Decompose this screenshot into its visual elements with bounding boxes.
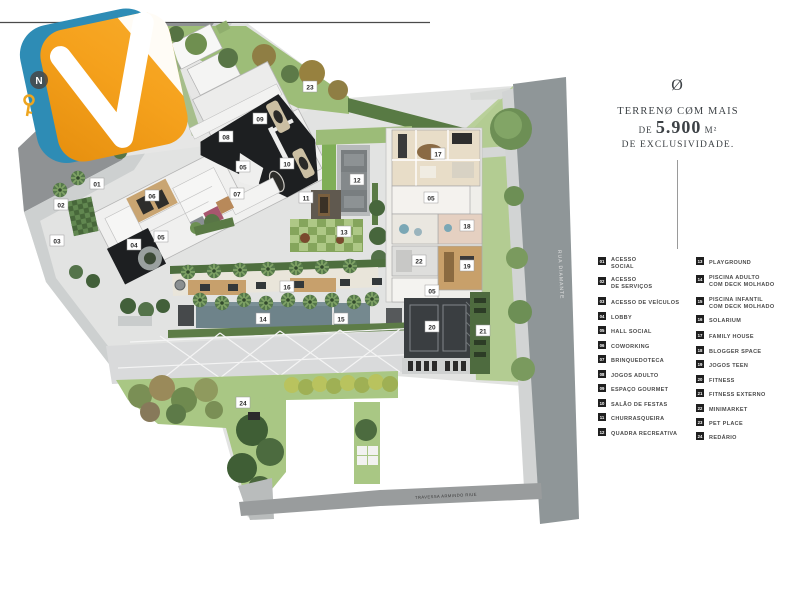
svg-text:18: 18 [698,348,703,353]
svg-text:01: 01 [600,259,605,264]
svg-text:TERRENØ CØM MAIS: TERRENØ CØM MAIS [617,106,738,117]
svg-text:SOLARIUM: SOLARIUM [709,318,741,324]
svg-text:20: 20 [428,325,436,332]
svg-text:09: 09 [600,386,605,391]
svg-text:23: 23 [306,85,314,92]
svg-text:ACESSO: ACESSO [611,257,637,263]
svg-text:06: 06 [148,194,156,201]
svg-text:11: 11 [600,415,605,420]
svg-text:23: 23 [698,420,703,425]
svg-text:05: 05 [239,165,247,172]
svg-text:QUADRA RECREATIVA: QUADRA RECREATIVA [611,431,677,437]
svg-text:14: 14 [698,277,703,282]
svg-text:CHURRASQUEIRA: CHURRASQUEIRA [611,416,664,422]
svg-text:10: 10 [283,162,291,169]
svg-text:COM DECK MOLHADO: COM DECK MOLHADO [709,304,775,310]
svg-text:24: 24 [698,434,703,439]
svg-text:FITNESS: FITNESS [709,378,735,384]
svg-text:22: 22 [415,259,423,266]
svg-text:17: 17 [698,333,703,338]
svg-text:03: 03 [600,299,605,304]
svg-text:20: 20 [698,377,703,382]
svg-text:FITNESS EXTERNO: FITNESS EXTERNO [709,392,766,398]
svg-text:03: 03 [53,239,61,246]
svg-text:13: 13 [340,230,348,237]
svg-text:LOBBY: LOBBY [611,315,632,321]
svg-text:BRINQUEDOTECA: BRINQUEDOTECA [611,358,664,364]
svg-text:08: 08 [222,135,230,142]
svg-text:DE EXCLUSIVIDADE.: DE EXCLUSIVIDADE. [622,140,735,150]
svg-text:PLAYGROUND: PLAYGROUND [709,260,751,266]
svg-text:17: 17 [434,152,442,159]
svg-text:COWORKING: COWORKING [611,344,650,350]
svg-text:DE 5.900 M²: DE 5.900 M² [639,117,718,137]
svg-text:06: 06 [600,343,605,348]
svg-text:18: 18 [463,224,471,231]
svg-text:13: 13 [698,259,703,264]
svg-text:19: 19 [463,264,471,271]
svg-text:SALÃO DE FESTAS: SALÃO DE FESTAS [611,401,668,408]
svg-text:15: 15 [698,299,703,304]
svg-text:05: 05 [600,328,605,333]
svg-text:JOGOS ADULTO: JOGOS ADULTO [611,373,659,379]
svg-text:BLOGGER SPACE: BLOGGER SPACE [709,349,761,355]
svg-text:MINIMARKET: MINIMARKET [709,407,748,413]
svg-text:05: 05 [157,235,165,242]
svg-text:Ø: Ø [671,77,683,94]
svg-text:05: 05 [428,289,436,296]
svg-text:N: N [35,76,42,87]
svg-text:07: 07 [233,192,241,199]
svg-text:COM DECK MOLHADO: COM DECK MOLHADO [709,282,775,288]
svg-text:12: 12 [353,178,361,185]
svg-text:DE SERVIÇOS: DE SERVIÇOS [611,284,652,290]
svg-text:04: 04 [130,243,138,250]
svg-text:22: 22 [698,406,703,411]
svg-text:21: 21 [698,391,703,396]
svg-text:12: 12 [600,430,605,435]
svg-text:19: 19 [698,362,703,367]
svg-text:FAMILY HOUSE: FAMILY HOUSE [709,334,754,340]
svg-text:JOGOS TEEN: JOGOS TEEN [709,363,748,369]
svg-text:PISCINA ADULTO: PISCINA ADULTO [709,275,760,281]
svg-text:02: 02 [57,203,65,210]
svg-text:HALL SOCIAL: HALL SOCIAL [611,329,652,335]
svg-text:ACESSO: ACESSO [611,277,637,283]
svg-text:14: 14 [259,317,267,324]
svg-text:PET PLACE: PET PLACE [709,421,743,427]
svg-text:01: 01 [93,182,101,189]
svg-text:02: 02 [600,279,605,284]
svg-text:21: 21 [479,329,487,336]
svg-text:ACESSO DE VEÍCULOS: ACESSO DE VEÍCULOS [611,298,679,306]
svg-text:10: 10 [600,401,605,406]
svg-text:15: 15 [337,317,345,324]
svg-text:REDÁRIO: REDÁRIO [709,434,737,441]
svg-text:SOCIAL: SOCIAL [611,264,634,270]
svg-text:08: 08 [600,372,605,377]
svg-text:16: 16 [698,317,703,322]
svg-text:11: 11 [303,196,310,203]
svg-text:PISCINA INFANTIL: PISCINA INFANTIL [709,297,763,303]
svg-text:05: 05 [427,196,435,203]
svg-text:24: 24 [239,401,247,408]
svg-text:04: 04 [600,314,605,319]
svg-text:09: 09 [256,117,264,124]
svg-text:16: 16 [283,285,291,292]
svg-text:07: 07 [600,357,605,362]
svg-text:ESPAÇO GOURMET: ESPAÇO GOURMET [611,387,669,393]
